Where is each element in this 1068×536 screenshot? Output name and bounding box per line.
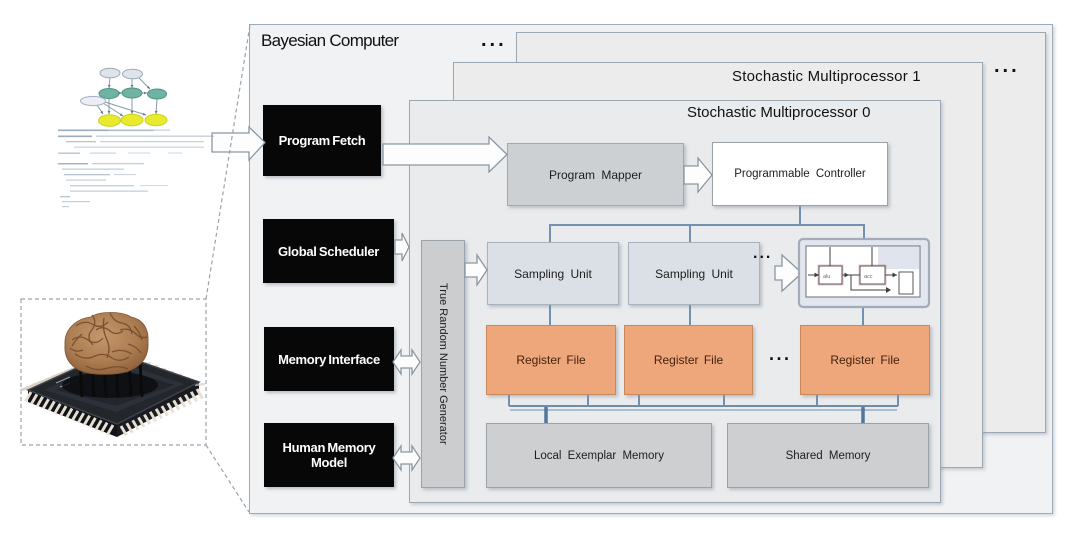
svg-text:alu: alu (823, 274, 830, 280)
svg-text:acc: acc (864, 274, 873, 280)
